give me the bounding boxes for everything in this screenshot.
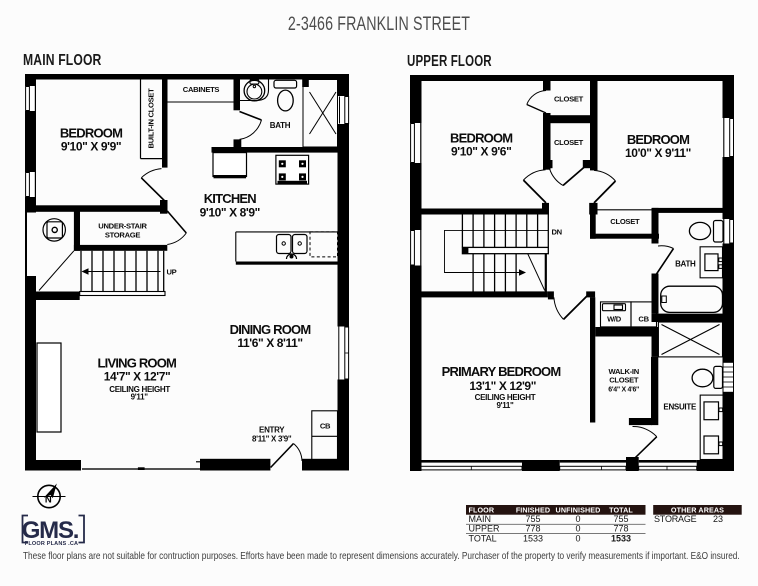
svg-text:TOTAL: TOTAL: [469, 533, 497, 543]
svg-text:ENSUITE: ENSUITE: [663, 403, 697, 412]
svg-text:TOTAL: TOTAL: [609, 505, 633, 514]
svg-text:DINING ROOM: DINING ROOM: [230, 322, 311, 337]
svg-text:FINISHED: FINISHED: [516, 505, 550, 514]
svg-text:PRIMARY BEDROOM: PRIMARY BEDROOM: [442, 364, 561, 379]
svg-text:N: N: [45, 494, 52, 505]
svg-text:ENTRY: ENTRY: [259, 426, 285, 435]
svg-text:UP: UP: [167, 268, 177, 277]
svg-text:CB: CB: [320, 422, 331, 431]
svg-text:CLOSET: CLOSET: [610, 217, 640, 226]
svg-text:FLOOR: FLOOR: [469, 505, 495, 514]
svg-text:778: 778: [525, 523, 540, 533]
svg-text:BATH: BATH: [270, 121, 291, 130]
svg-text:6'4" X 4'6": 6'4" X 4'6": [608, 387, 639, 394]
svg-text:CLOSET: CLOSET: [554, 138, 584, 147]
svg-text:BATH: BATH: [675, 260, 696, 269]
svg-text:FLOOR PLANS .CA: FLOOR PLANS .CA: [25, 541, 78, 547]
svg-text:DN: DN: [552, 228, 562, 237]
svg-text:2-3466 FRANKLIN STREET: 2-3466 FRANKLIN STREET: [288, 13, 470, 34]
svg-text:UNDER-STAIR: UNDER-STAIR: [98, 222, 147, 231]
svg-text:BEDROOM: BEDROOM: [60, 126, 122, 141]
svg-text:CB: CB: [638, 315, 649, 324]
svg-text:11'6" X 8'11": 11'6" X 8'11": [237, 336, 302, 350]
svg-text:BEDROOM: BEDROOM: [450, 131, 512, 146]
svg-text:WALK-IN: WALK-IN: [609, 367, 639, 376]
svg-text:9'11": 9'11": [131, 393, 149, 402]
svg-text:CLOSET: CLOSET: [554, 95, 584, 104]
svg-text:UPPER: UPPER: [469, 523, 501, 533]
svg-text:BUILT-IN CLOSET: BUILT-IN CLOSET: [147, 88, 156, 149]
svg-text:778: 778: [613, 523, 628, 533]
svg-text:STORAGE: STORAGE: [654, 514, 697, 524]
svg-text:13'1" X 12'9": 13'1" X 12'9": [469, 379, 536, 393]
svg-text:W/D: W/D: [607, 315, 622, 324]
svg-text:9'10" X 9'6": 9'10" X 9'6": [451, 145, 511, 159]
svg-text:14'7" X 12'7": 14'7" X 12'7": [104, 370, 171, 384]
svg-text:CABINETS: CABINETS: [183, 85, 220, 94]
svg-text:9'10" X 8'9": 9'10" X 8'9": [200, 206, 260, 220]
svg-text:0: 0: [575, 523, 580, 533]
svg-text:KITCHEN: KITCHEN: [204, 191, 257, 206]
svg-text:1533: 1533: [523, 533, 543, 543]
svg-text:LIVING ROOM: LIVING ROOM: [98, 356, 177, 371]
svg-text:10'0" X 9'11": 10'0" X 9'11": [625, 146, 691, 160]
svg-text:1533: 1533: [611, 533, 631, 543]
svg-text:0: 0: [575, 533, 580, 543]
svg-text:BEDROOM: BEDROOM: [627, 132, 689, 147]
svg-text:CLOSET: CLOSET: [609, 376, 639, 385]
svg-text:23: 23: [713, 514, 723, 524]
svg-text:UPPER FLOOR: UPPER FLOOR: [407, 51, 492, 69]
svg-text:These floor plans are not suit: These floor plans are not suitable for c…: [23, 550, 740, 561]
svg-text:9'10" X 9'9": 9'10" X 9'9": [61, 140, 121, 154]
svg-text:8'11" X 3'9": 8'11" X 3'9": [252, 435, 292, 444]
svg-text:UNFINISHED: UNFINISHED: [556, 505, 601, 514]
svg-text:GMS.: GMS.: [22, 517, 79, 544]
svg-text:9'11": 9'11": [496, 401, 514, 410]
svg-text:STORAGE: STORAGE: [105, 231, 141, 240]
svg-text:MAIN FLOOR: MAIN FLOOR: [23, 51, 101, 69]
svg-text:OTHER AREAS: OTHER AREAS: [671, 505, 724, 514]
